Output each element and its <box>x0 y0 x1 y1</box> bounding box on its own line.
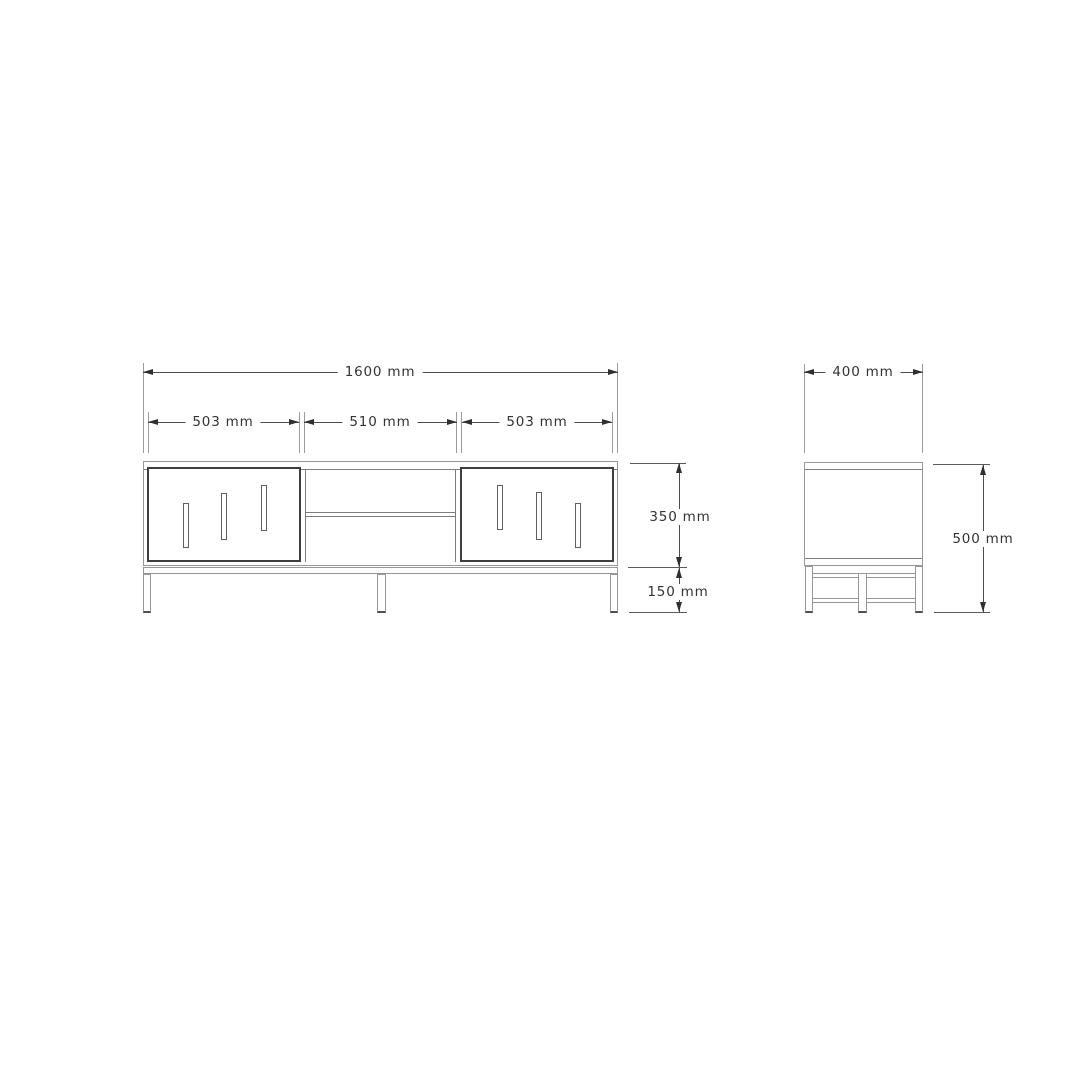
arrow-left-icon <box>143 369 153 375</box>
dim-label-total-width: 1600 mm <box>338 364 423 380</box>
door-handle-slot <box>536 492 542 540</box>
arrow-down-icon <box>676 602 682 612</box>
arrow-left-icon <box>462 419 472 425</box>
door-handle-slot <box>497 485 503 530</box>
extension-line <box>143 363 144 453</box>
extension-line <box>299 412 300 453</box>
extension-line <box>804 364 805 453</box>
front-leg-left <box>143 574 151 613</box>
side-leg-back <box>915 566 923 613</box>
front-leg-center <box>377 574 386 613</box>
arrow-right-icon <box>602 419 612 425</box>
arrow-down-icon <box>676 557 682 567</box>
extension-line <box>617 363 618 453</box>
front-center-shelf <box>305 512 456 517</box>
side-top-panel-line <box>805 469 922 470</box>
door-handle-slot <box>261 485 267 531</box>
arrow-right-icon <box>608 369 618 375</box>
door-handle-slot <box>183 503 189 548</box>
arrow-left-icon <box>148 419 158 425</box>
arrow-right-icon <box>447 419 457 425</box>
arrow-up-icon <box>980 465 986 475</box>
side-bottom-panel-line <box>805 558 922 559</box>
arrow-right-icon <box>289 419 299 425</box>
side-body-outline <box>804 462 923 566</box>
door-handle-slot <box>575 503 581 548</box>
tick-line <box>629 612 687 613</box>
arrow-right-icon <box>913 369 923 375</box>
dim-label-body-height: 350 mm <box>642 509 717 525</box>
dim-label-left-section: 503 mm <box>185 414 260 430</box>
extension-line <box>612 412 613 453</box>
extension-line <box>922 364 923 453</box>
drawing-canvas: 1600 mm 503 mm 510 mm 503 mm <box>0 0 1080 1080</box>
dim-label-total-height: 500 mm <box>945 531 1020 547</box>
tick-line <box>934 612 990 613</box>
dim-label-base-height: 150 mm <box>640 584 715 600</box>
side-leg-front <box>805 566 813 613</box>
dim-label-right-section: 503 mm <box>499 414 574 430</box>
arrow-up-icon <box>676 568 682 578</box>
side-middle-post <box>858 573 867 613</box>
arrow-down-icon <box>980 602 986 612</box>
door-handle-slot <box>221 493 227 540</box>
arrow-left-icon <box>304 419 314 425</box>
dim-label-center-section: 510 mm <box>342 414 417 430</box>
arrow-up-icon <box>676 463 682 473</box>
front-base-rail <box>143 567 618 574</box>
front-leg-right <box>610 574 618 613</box>
dim-label-depth: 400 mm <box>825 364 900 380</box>
arrow-left-icon <box>804 369 814 375</box>
